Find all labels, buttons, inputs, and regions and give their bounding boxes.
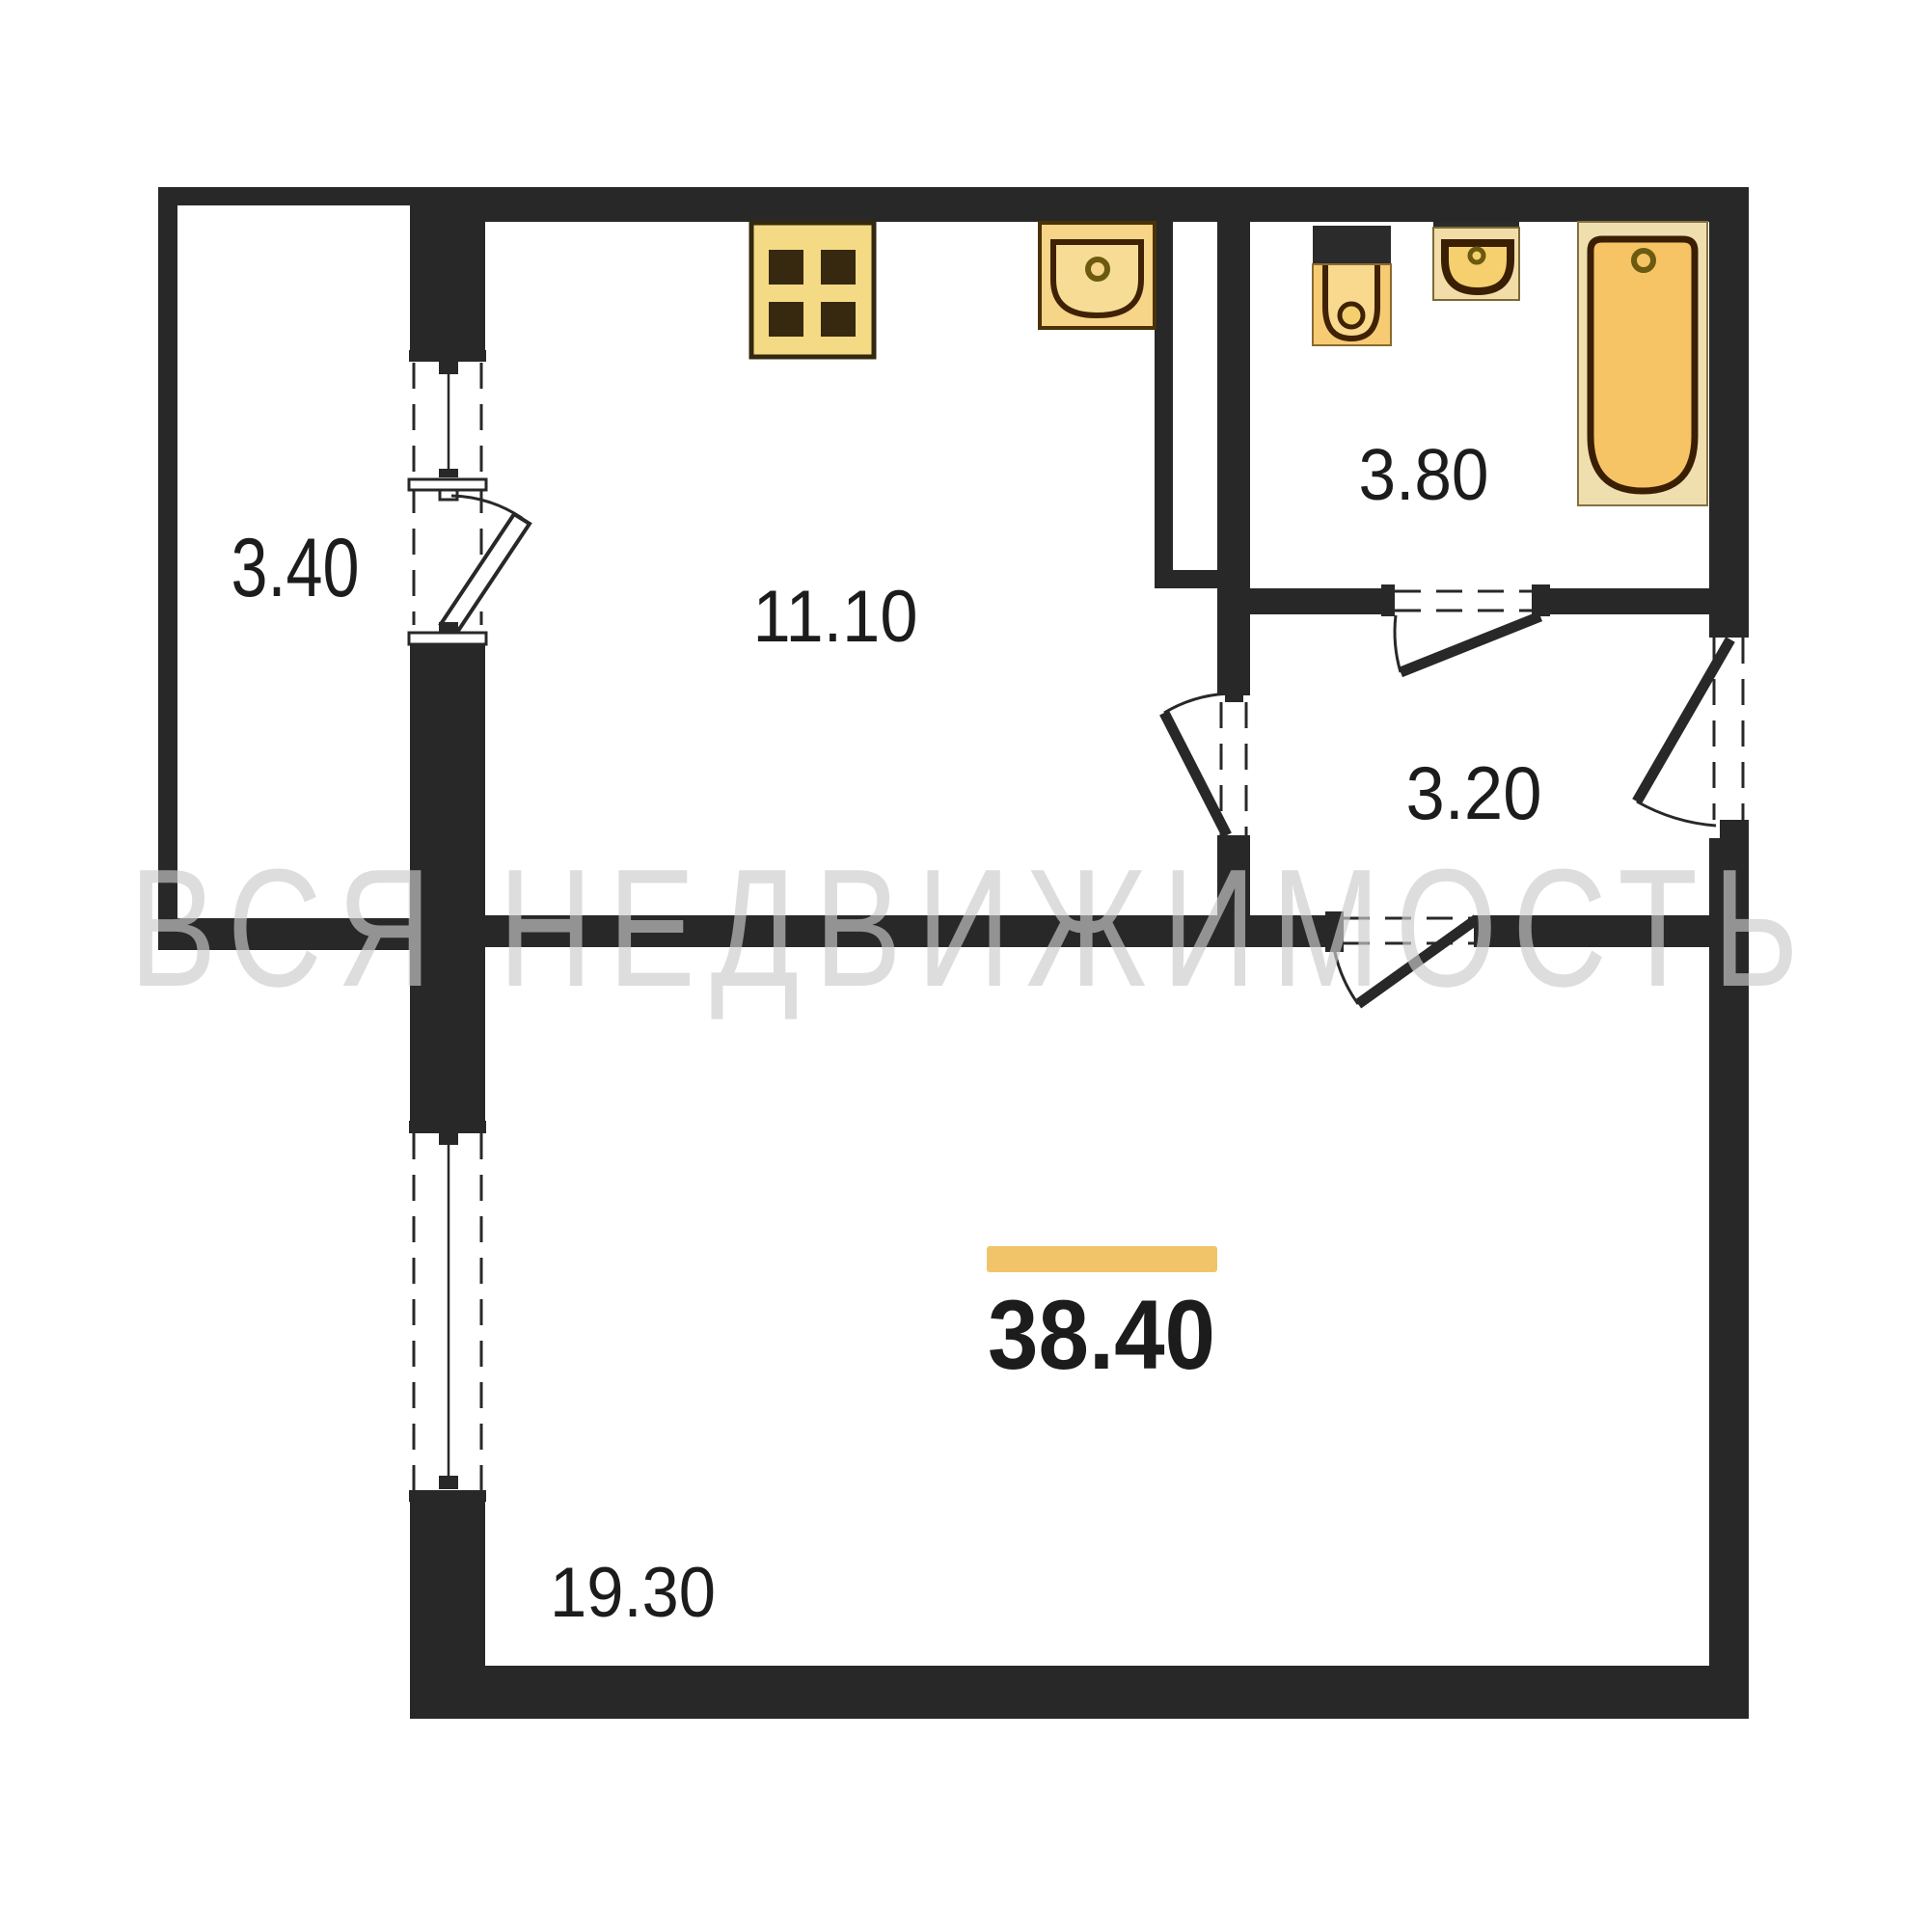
svg-text:38.40: 38.40 [988, 1280, 1215, 1390]
svg-text:3.20: 3.20 [1406, 750, 1542, 835]
svg-text:3.80: 3.80 [1359, 434, 1489, 515]
svg-text:11.10: 11.10 [753, 576, 918, 658]
svg-text:ВСЯ НЕДВИЖИМОСТЬ: ВСЯ НЕДВИЖИМОСТЬ [129, 835, 1799, 1022]
svg-text:3.40: 3.40 [231, 522, 360, 614]
svg-text:19.30: 19.30 [550, 1554, 716, 1632]
